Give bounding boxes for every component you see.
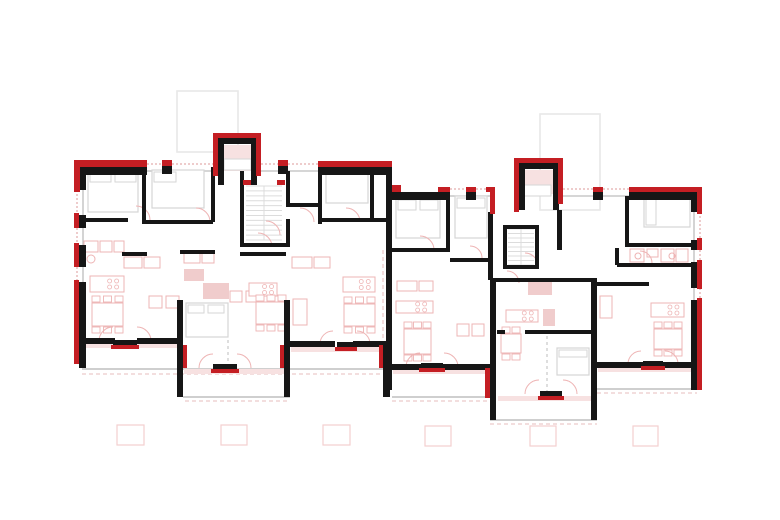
wall-segment (597, 282, 649, 286)
wall-segment (593, 192, 603, 200)
gray-fixture (559, 350, 587, 357)
furniture-item (292, 257, 312, 268)
chair (414, 355, 422, 361)
furniture-item (419, 281, 433, 291)
insulation-segment (162, 160, 172, 166)
wall-segment (180, 250, 215, 254)
insulation-segment (438, 187, 450, 192)
gray-fixture (646, 199, 656, 225)
furniture-item (472, 324, 484, 336)
door-arc (300, 208, 314, 222)
furniture-item (661, 249, 674, 262)
wall-segment (591, 278, 597, 420)
door-arc (196, 208, 210, 222)
wall-segment (519, 163, 525, 210)
furniture-item (202, 253, 214, 263)
wall-segment (337, 342, 355, 347)
planter-outline (221, 425, 247, 445)
chair (115, 296, 123, 302)
gray-fixture (208, 305, 224, 313)
chair (674, 322, 682, 328)
wall-segment (597, 362, 643, 368)
wall-segment (497, 330, 505, 334)
chair (344, 297, 352, 303)
wall-segment (490, 278, 597, 282)
furniture-item (314, 257, 330, 268)
wall-segment (284, 300, 290, 397)
insulation-segment (629, 187, 702, 192)
insulation-segment (111, 345, 139, 349)
dining-table (501, 334, 521, 353)
insulation-segment (256, 133, 261, 176)
chair (674, 350, 682, 356)
wall-segment (83, 338, 115, 344)
wall-segment (446, 196, 450, 250)
insulation-segment (485, 368, 490, 398)
wall-segment (142, 220, 213, 224)
wall-segment (691, 192, 697, 212)
chair (115, 327, 123, 333)
insulation-segment (697, 260, 702, 289)
wall-segment (286, 203, 320, 207)
insulation-segment (490, 187, 495, 214)
wall-segment (122, 252, 147, 256)
new-partition-fill (528, 282, 552, 295)
insulation-segment (74, 280, 79, 364)
furniture-item (293, 299, 307, 325)
wall-segment (617, 263, 693, 267)
wall-segment (466, 192, 476, 200)
chair (104, 296, 112, 302)
wall-segment (318, 167, 322, 224)
chair (356, 297, 364, 303)
wall-segment (392, 364, 421, 370)
wall-segment (286, 219, 290, 247)
door-arc (563, 380, 577, 394)
chair (267, 295, 275, 301)
insulation-segment (697, 298, 702, 390)
door-arc (525, 380, 539, 394)
dining-table (654, 329, 682, 349)
wall-segment (663, 362, 691, 368)
chair (664, 322, 672, 328)
wall-segment (557, 210, 562, 250)
furniture-item (600, 296, 612, 318)
basin-circle (87, 255, 95, 263)
wall-segment (627, 243, 693, 247)
insulation-segment (74, 160, 80, 192)
chair (404, 322, 412, 328)
wall-segment (353, 341, 383, 347)
wall-segment (691, 300, 697, 390)
chair (654, 322, 662, 328)
chair (92, 296, 100, 302)
insulation-segment (392, 185, 401, 192)
wall-segment (505, 225, 537, 229)
insulation-segment (280, 345, 284, 368)
wall-segment (79, 163, 86, 190)
wall-segment (643, 361, 663, 366)
page: { "document": { "kind": "architectural-f… (0, 0, 780, 520)
furniture-item (676, 249, 688, 262)
wall-segment (392, 248, 450, 252)
insulation-segment (335, 347, 357, 351)
wall-segment (421, 363, 443, 368)
wall-segment (177, 300, 183, 397)
wall-segment (525, 330, 593, 334)
new-partition-fill (543, 309, 555, 326)
planter-outline (425, 426, 451, 446)
insulation-segment (278, 160, 288, 166)
wall-segment (625, 196, 629, 247)
dining-table (92, 303, 123, 326)
chair (512, 354, 520, 360)
kitchen-island (90, 276, 124, 292)
gray-fixture (188, 305, 204, 313)
furniture-item (100, 241, 112, 252)
chair (344, 327, 352, 333)
gray-fixture (398, 200, 416, 210)
dining-table (404, 329, 431, 354)
wall-segment (240, 252, 286, 256)
wall-segment (629, 192, 697, 200)
wall-segment (370, 167, 374, 220)
wall-segment (218, 138, 224, 185)
wall-segment (505, 265, 537, 269)
dining-table (344, 304, 375, 326)
chair (512, 327, 520, 333)
kitchen-island (343, 277, 375, 292)
wall-segment (443, 364, 490, 370)
furniture-item (84, 241, 98, 252)
insulation-segment (697, 238, 702, 250)
kitchen-island (396, 301, 433, 313)
kitchen-island (651, 303, 684, 317)
gray-fixture (523, 185, 551, 196)
wall-segment (290, 341, 335, 347)
furniture-item (230, 291, 242, 302)
furniture-item (149, 296, 162, 308)
furniture-item (114, 241, 124, 252)
wall-segment (79, 245, 86, 267)
insulation-segment (243, 180, 251, 185)
chair (367, 297, 375, 303)
dining-table (256, 302, 286, 324)
new-partition-fill (184, 269, 204, 281)
planter-outline (633, 426, 658, 446)
wall-segment (450, 258, 492, 262)
wall-segment (318, 167, 392, 175)
furniture-item (124, 257, 142, 268)
insulation-segment (514, 158, 563, 163)
wall-segment (615, 248, 619, 265)
insulation-segment (213, 133, 218, 176)
furniture-item (647, 249, 658, 257)
insulation-segment (318, 161, 392, 167)
wall-segment (322, 218, 386, 222)
wall-segment (79, 282, 86, 368)
insulation-segment (466, 187, 476, 192)
wall-segment (503, 225, 507, 269)
door-arc (266, 221, 280, 235)
wall-segment (213, 364, 237, 369)
insulation-segment (697, 187, 702, 214)
chair (423, 322, 431, 328)
chair (502, 354, 510, 360)
furniture-item (457, 324, 469, 336)
gray-fixture (420, 200, 438, 210)
chair (256, 325, 264, 331)
wall-segment (286, 171, 290, 205)
insulation-segment (379, 345, 383, 368)
wall-segment (488, 212, 493, 280)
door-arc (199, 354, 213, 368)
wall-segment (240, 243, 290, 247)
wall-segment (383, 341, 390, 397)
chair (423, 355, 431, 361)
chair (367, 327, 375, 333)
insulation-segment (593, 187, 603, 192)
wall-segment (490, 278, 496, 420)
floor-plan-canvas (0, 0, 780, 520)
planter-outline (117, 425, 144, 445)
wall-segment (162, 166, 172, 174)
chair (256, 295, 264, 301)
chair (92, 327, 100, 333)
insulation-segment (558, 158, 563, 204)
planter-outline (530, 426, 556, 446)
insulation-segment (277, 180, 285, 185)
furniture-item (144, 257, 160, 268)
wall-segment (113, 340, 137, 345)
door-arc (237, 354, 251, 368)
wall-segment (80, 218, 128, 222)
wall-segment (392, 192, 450, 200)
wall-segment (80, 167, 147, 175)
insulation-segment (514, 158, 519, 212)
insulation-segment (641, 366, 665, 370)
door-arc (470, 246, 482, 258)
insulation-segment (211, 369, 239, 373)
insulation-segment (419, 368, 445, 372)
wall-segment (142, 167, 146, 222)
insulation-segment (213, 133, 261, 138)
floor-plan-drawing (0, 0, 780, 520)
wall-segment (137, 338, 183, 344)
furniture-item (184, 253, 200, 263)
insulation-segment (74, 213, 79, 228)
chair (414, 322, 422, 328)
insulation-segment (183, 345, 187, 368)
chair (654, 350, 662, 356)
gray-fixture (224, 159, 251, 170)
wall-segment (535, 225, 539, 269)
bed (326, 171, 368, 203)
planter-outline (323, 425, 350, 445)
wall-segment (540, 391, 562, 396)
insulation-segment (74, 243, 79, 267)
chair (267, 325, 275, 331)
furniture-item (397, 281, 417, 291)
insulation-segment (74, 160, 147, 167)
insulation-segment (538, 396, 564, 400)
new-partition-fill (203, 283, 229, 299)
